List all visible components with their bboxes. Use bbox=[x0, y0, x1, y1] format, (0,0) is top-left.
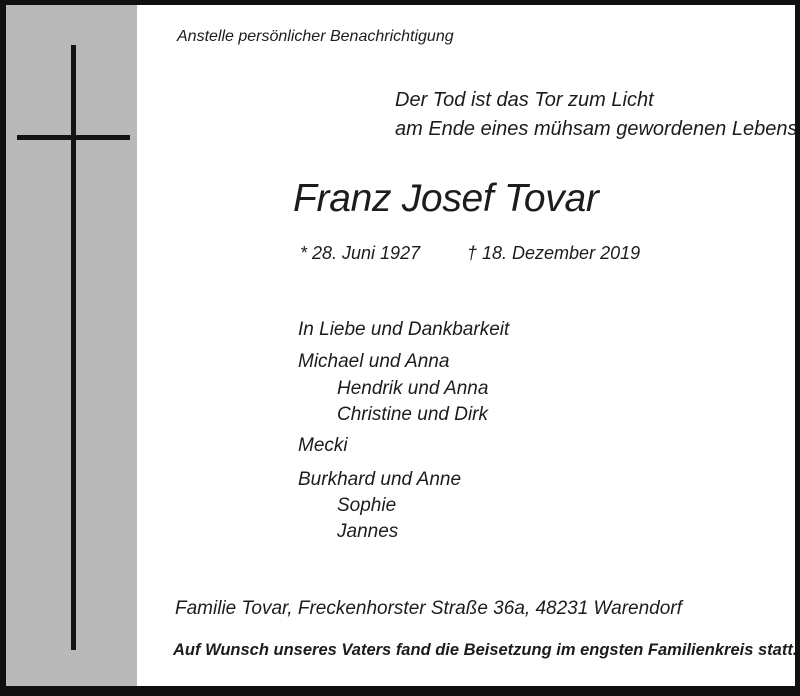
family-address-line: Familie Tovar, Freckenhorster Straße 36a… bbox=[175, 598, 682, 621]
intro-line: Anstelle persönlicher Benachrichtigung bbox=[177, 27, 454, 46]
epigraph: Der Tod ist das Tor zum Licht am Ende ei… bbox=[395, 86, 800, 144]
cross-icon-bar bbox=[17, 135, 130, 140]
epigraph-line-2: am Ende eines mühsam gewordenen Lebens. bbox=[395, 115, 800, 144]
family-member: Burkhard und Anne bbox=[298, 469, 461, 492]
family-member-child: Sophie bbox=[337, 495, 396, 518]
birth-date: * 28. Juni 1927 bbox=[300, 243, 420, 265]
deceased-name: Franz Josef Tovar bbox=[293, 176, 599, 223]
mourning-lead-line: In Liebe und Dankbarkeit bbox=[298, 319, 509, 342]
family-member: Mecki bbox=[298, 435, 348, 458]
family-member: Michael und Anna bbox=[298, 351, 449, 374]
family-member-child: Hendrik und Anna bbox=[337, 378, 488, 401]
family-member-child: Christine und Dirk bbox=[337, 404, 488, 427]
closing-line: Auf Wunsch unseres Vaters fand die Beise… bbox=[173, 641, 797, 661]
epigraph-line-1: Der Tod ist das Tor zum Licht bbox=[395, 86, 800, 115]
death-date: † 18. Dezember 2019 bbox=[467, 243, 640, 265]
obituary-notice: Anstelle persönlicher Benachrichtigung D… bbox=[0, 0, 800, 696]
family-member-child: Jannes bbox=[337, 521, 398, 544]
